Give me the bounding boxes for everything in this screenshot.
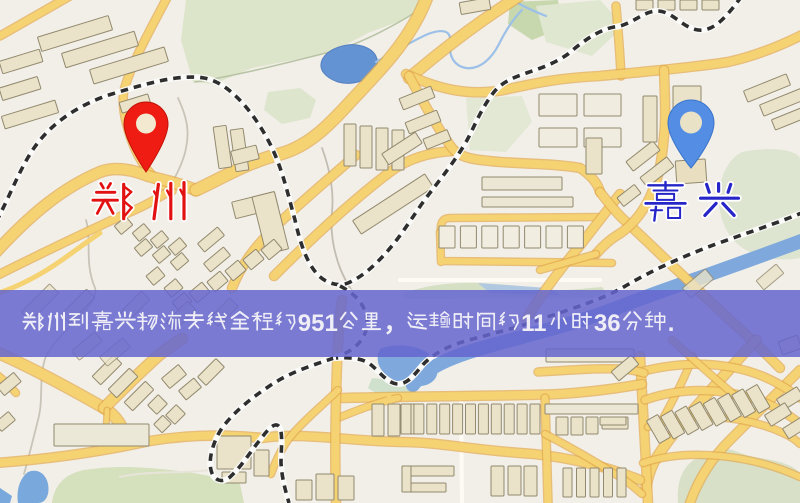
svg-text:36: 36 (594, 310, 621, 337)
svg-text:951: 951 (298, 310, 338, 337)
svg-text:11: 11 (521, 310, 546, 337)
svg-text:，: ， (384, 310, 408, 337)
svg-text:.: . (668, 310, 675, 337)
